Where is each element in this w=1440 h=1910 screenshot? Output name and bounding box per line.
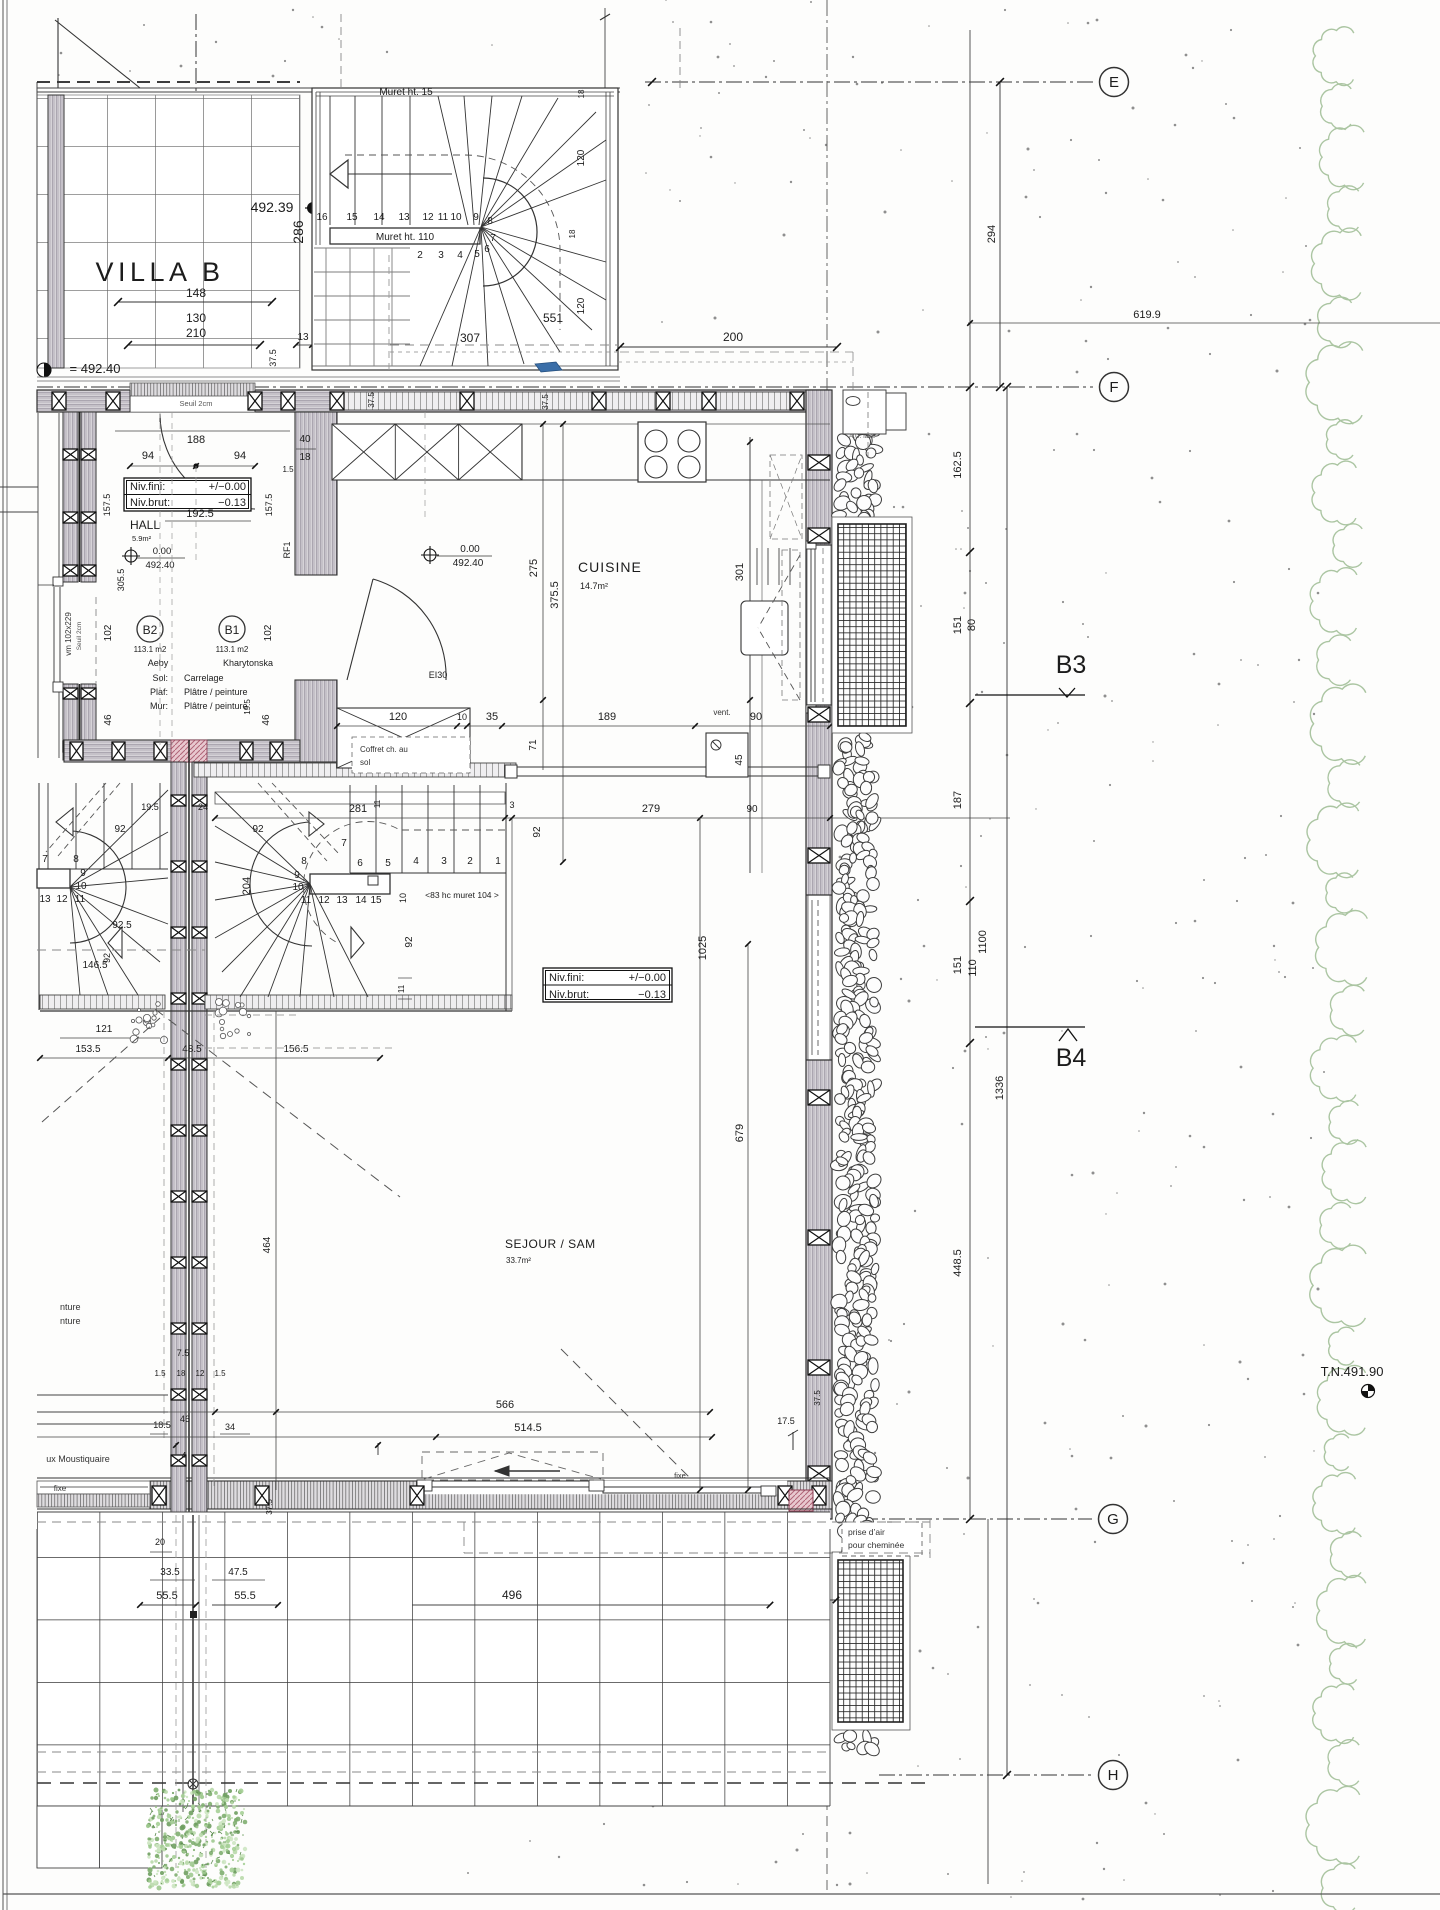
svg-text:F: F bbox=[1109, 379, 1118, 396]
svg-text:1.5: 1.5 bbox=[214, 1369, 226, 1378]
svg-text:13: 13 bbox=[297, 332, 309, 343]
svg-text:Mur:: Mur: bbox=[150, 701, 168, 711]
svg-text:551: 551 bbox=[543, 311, 563, 325]
svg-text:45: 45 bbox=[734, 754, 745, 766]
svg-text:37.5: 37.5 bbox=[813, 1390, 822, 1406]
svg-text:Plâtre / peinture: Plâtre / peinture bbox=[184, 687, 248, 697]
svg-text:+/−0.00: +/−0.00 bbox=[209, 481, 246, 493]
svg-text:46: 46 bbox=[103, 714, 114, 726]
svg-text:7: 7 bbox=[341, 838, 347, 849]
svg-text:37.5: 37.5 bbox=[541, 394, 550, 410]
svg-text:CUISINE: CUISINE bbox=[578, 559, 642, 575]
svg-text:EI30: EI30 bbox=[429, 670, 448, 680]
svg-text:113.1 m2: 113.1 m2 bbox=[216, 645, 249, 654]
svg-text:14: 14 bbox=[355, 895, 367, 906]
svg-text:= 492.40: = 492.40 bbox=[70, 361, 121, 376]
svg-text:E: E bbox=[1109, 74, 1119, 91]
svg-text:156.5: 156.5 bbox=[283, 1044, 308, 1055]
svg-text:162.5: 162.5 bbox=[952, 451, 964, 479]
svg-text:10: 10 bbox=[292, 882, 304, 893]
svg-text:55.5: 55.5 bbox=[156, 1590, 177, 1602]
svg-text:3: 3 bbox=[441, 856, 447, 867]
svg-text:94: 94 bbox=[142, 450, 154, 462]
svg-text:120: 120 bbox=[576, 297, 587, 314]
svg-text:40: 40 bbox=[299, 434, 311, 445]
svg-text:2: 2 bbox=[417, 250, 423, 261]
svg-text:12: 12 bbox=[56, 894, 68, 905]
svg-text:90: 90 bbox=[746, 804, 758, 815]
svg-text:Aeby: Aeby bbox=[148, 658, 169, 668]
svg-text:5: 5 bbox=[385, 858, 391, 869]
svg-text:92: 92 bbox=[532, 826, 543, 838]
svg-text:Niv.brut:: Niv.brut: bbox=[130, 497, 170, 509]
svg-text:11: 11 bbox=[397, 984, 406, 993]
svg-text:16: 16 bbox=[316, 212, 328, 223]
svg-text:10: 10 bbox=[75, 881, 87, 892]
svg-text:18: 18 bbox=[577, 89, 586, 98]
svg-text:187: 187 bbox=[952, 791, 964, 809]
svg-text:4: 4 bbox=[413, 856, 419, 867]
svg-text:281: 281 bbox=[349, 803, 367, 815]
svg-text:566: 566 bbox=[496, 1399, 514, 1411]
svg-text:12: 12 bbox=[318, 895, 330, 906]
svg-text:48.5: 48.5 bbox=[182, 1044, 202, 1055]
svg-text:8: 8 bbox=[73, 854, 79, 865]
svg-text:33.5: 33.5 bbox=[160, 1567, 180, 1578]
svg-text:G: G bbox=[1107, 1511, 1119, 1528]
svg-text:92: 92 bbox=[404, 936, 415, 948]
svg-text:12: 12 bbox=[196, 1369, 205, 1378]
svg-text:514.5: 514.5 bbox=[514, 1422, 542, 1434]
svg-text:33.7m²: 33.7m² bbox=[506, 1256, 531, 1265]
svg-text:294: 294 bbox=[986, 225, 998, 243]
svg-text:sol: sol bbox=[360, 758, 370, 767]
svg-text:Carrelage: Carrelage bbox=[184, 673, 224, 683]
svg-text:RF1: RF1 bbox=[282, 541, 292, 558]
svg-text:10: 10 bbox=[450, 212, 462, 223]
svg-text:B1: B1 bbox=[225, 623, 240, 637]
svg-text:A.U. lave: A.U. lave bbox=[849, 433, 876, 440]
svg-text:102: 102 bbox=[103, 624, 114, 641]
svg-text:0.00: 0.00 bbox=[153, 546, 172, 557]
svg-text:1100: 1100 bbox=[977, 930, 989, 954]
svg-text:1336: 1336 bbox=[994, 1076, 1006, 1100]
svg-text:4: 4 bbox=[457, 250, 463, 261]
svg-text:204: 204 bbox=[241, 877, 253, 895]
svg-text:4: 4 bbox=[182, 1451, 187, 1460]
svg-text:151: 151 bbox=[952, 956, 964, 974]
svg-text:12: 12 bbox=[422, 212, 434, 223]
svg-text:102: 102 bbox=[263, 624, 274, 641]
svg-text:17.5: 17.5 bbox=[777, 1416, 795, 1426]
svg-text:188: 188 bbox=[187, 434, 205, 446]
svg-text:92: 92 bbox=[114, 824, 126, 835]
svg-text:5: 5 bbox=[474, 249, 480, 260]
svg-text:5.9m²: 5.9m² bbox=[132, 534, 152, 543]
svg-text:Coffret ch. au: Coffret ch. au bbox=[360, 745, 408, 754]
svg-text:Muret ht. 110: Muret ht. 110 bbox=[376, 232, 435, 243]
svg-text:46: 46 bbox=[180, 1414, 190, 1424]
svg-text:18.5: 18.5 bbox=[153, 1420, 171, 1430]
svg-text:619.9: 619.9 bbox=[1133, 309, 1161, 321]
svg-text:13: 13 bbox=[336, 895, 348, 906]
svg-text:prise d’air: prise d’air bbox=[848, 1527, 885, 1537]
svg-text:11: 11 bbox=[75, 894, 86, 905]
svg-text:15: 15 bbox=[346, 212, 358, 223]
svg-text:B4: B4 bbox=[1056, 1044, 1087, 1072]
svg-text:B2: B2 bbox=[143, 623, 158, 637]
svg-text:55.5: 55.5 bbox=[234, 1590, 255, 1602]
svg-text:ux Moustiquaire: ux Moustiquaire bbox=[46, 1454, 110, 1464]
svg-text:120: 120 bbox=[576, 149, 587, 166]
svg-text:Plaf:: Plaf: bbox=[150, 687, 168, 697]
svg-text:34: 34 bbox=[225, 1422, 235, 1432]
svg-text:Seuil 2cm: Seuil 2cm bbox=[180, 399, 213, 408]
svg-text:9: 9 bbox=[294, 870, 300, 881]
svg-text:464: 464 bbox=[262, 1236, 273, 1253]
svg-text:94: 94 bbox=[234, 450, 246, 462]
svg-text:B3: B3 bbox=[1056, 651, 1087, 679]
svg-text:fixe: fixe bbox=[54, 1484, 67, 1493]
svg-text:Niv.brut:: Niv.brut: bbox=[549, 989, 589, 1001]
svg-text:90: 90 bbox=[750, 711, 762, 723]
svg-text:305.5: 305.5 bbox=[116, 569, 126, 592]
svg-text:SEJOUR / SAM: SEJOUR / SAM bbox=[505, 1237, 596, 1251]
svg-text:19.5: 19.5 bbox=[243, 699, 252, 715]
svg-text:35: 35 bbox=[486, 711, 498, 723]
svg-text:vm 102x229: vm 102x229 bbox=[64, 612, 73, 656]
svg-text:7: 7 bbox=[42, 854, 48, 865]
svg-text:679: 679 bbox=[734, 1124, 746, 1142]
svg-text:92: 92 bbox=[252, 824, 264, 835]
svg-text:Kharytonska: Kharytonska bbox=[223, 658, 273, 668]
svg-text:157.5: 157.5 bbox=[102, 494, 112, 517]
svg-text:nture: nture bbox=[60, 1302, 81, 1312]
svg-text:120: 120 bbox=[389, 711, 407, 723]
svg-text:8: 8 bbox=[301, 856, 307, 867]
svg-text:2: 2 bbox=[467, 856, 473, 867]
svg-text:1.5: 1.5 bbox=[154, 1369, 166, 1378]
svg-text:121: 121 bbox=[96, 1024, 113, 1035]
svg-text:8: 8 bbox=[487, 216, 493, 227]
svg-text:37.5: 37.5 bbox=[265, 1499, 274, 1515]
svg-text:Plâtre / peinture: Plâtre / peinture bbox=[184, 701, 248, 711]
svg-text:286: 286 bbox=[290, 220, 306, 244]
svg-text:275: 275 bbox=[528, 559, 540, 577]
svg-text:307: 307 bbox=[460, 331, 480, 345]
svg-text:10: 10 bbox=[398, 893, 408, 903]
svg-text:492.40: 492.40 bbox=[453, 558, 484, 569]
svg-text:80: 80 bbox=[966, 619, 978, 631]
svg-text:14: 14 bbox=[373, 212, 385, 223]
svg-text:157.5: 157.5 bbox=[264, 494, 274, 517]
svg-text:1025: 1025 bbox=[697, 936, 709, 960]
svg-text:279: 279 bbox=[642, 803, 660, 815]
svg-text:189: 189 bbox=[598, 711, 616, 723]
svg-text:20: 20 bbox=[155, 1537, 165, 1547]
svg-text:192.5: 192.5 bbox=[186, 508, 214, 520]
svg-text:210: 210 bbox=[186, 326, 206, 340]
svg-text:24: 24 bbox=[198, 802, 208, 812]
svg-text:3: 3 bbox=[438, 250, 444, 261]
svg-text:11: 11 bbox=[438, 212, 449, 223]
svg-text:H: H bbox=[1108, 1767, 1119, 1784]
svg-text:T.N.491.90: T.N.491.90 bbox=[1321, 1364, 1384, 1379]
svg-text:vent.: vent. bbox=[713, 708, 730, 717]
svg-text:13: 13 bbox=[39, 894, 51, 905]
svg-text:9: 9 bbox=[80, 868, 86, 879]
svg-text:200: 200 bbox=[723, 330, 743, 344]
svg-text:92.5: 92.5 bbox=[112, 920, 132, 931]
svg-text:0.00: 0.00 bbox=[460, 544, 480, 555]
svg-text:47.5: 47.5 bbox=[228, 1567, 248, 1578]
svg-text:1.5: 1.5 bbox=[282, 465, 294, 474]
svg-text:1: 1 bbox=[495, 856, 501, 867]
svg-text:−0.13: −0.13 bbox=[638, 989, 666, 1001]
svg-text:6: 6 bbox=[484, 244, 490, 255]
svg-text:146.5: 146.5 bbox=[82, 960, 107, 971]
svg-text:37.5: 37.5 bbox=[268, 349, 278, 367]
svg-text:19.5: 19.5 bbox=[141, 802, 159, 812]
svg-text:7: 7 bbox=[490, 233, 496, 244]
svg-text:18: 18 bbox=[177, 1369, 186, 1378]
svg-text:448.5: 448.5 bbox=[952, 1249, 964, 1277]
svg-text:pour cheminée: pour cheminée bbox=[848, 1540, 905, 1550]
svg-text:HALL: HALL bbox=[130, 518, 160, 532]
svg-text:7.5: 7.5 bbox=[177, 1348, 190, 1358]
svg-text:148: 148 bbox=[186, 286, 206, 300]
svg-text:10: 10 bbox=[457, 712, 467, 722]
svg-text:6: 6 bbox=[357, 858, 363, 869]
svg-text:492.39: 492.39 bbox=[251, 199, 294, 215]
svg-text:18: 18 bbox=[568, 229, 577, 238]
svg-text:<83 hc muret 104 >: <83 hc muret 104 > bbox=[425, 890, 499, 900]
svg-text:18: 18 bbox=[299, 452, 311, 463]
svg-text:3: 3 bbox=[509, 800, 514, 810]
svg-text:VILLA B: VILLA B bbox=[95, 257, 224, 287]
svg-text:71: 71 bbox=[528, 739, 539, 751]
svg-text:nture: nture bbox=[60, 1316, 81, 1326]
svg-text:−0.13: −0.13 bbox=[218, 497, 246, 509]
svg-text:130: 130 bbox=[186, 311, 206, 325]
svg-text:113.1 m2: 113.1 m2 bbox=[134, 645, 167, 654]
svg-text:110: 110 bbox=[967, 959, 979, 977]
svg-text:Seuil 2cm: Seuil 2cm bbox=[76, 622, 83, 651]
svg-text:14.7m²: 14.7m² bbox=[580, 581, 608, 591]
svg-text:9: 9 bbox=[473, 212, 479, 223]
svg-text:301: 301 bbox=[734, 563, 746, 581]
svg-text:496: 496 bbox=[502, 1588, 522, 1602]
svg-text:37.5: 37.5 bbox=[367, 392, 376, 408]
svg-text:153.5: 153.5 bbox=[75, 1044, 100, 1055]
svg-text:Muret ht. 15: Muret ht. 15 bbox=[379, 87, 433, 98]
svg-text:151: 151 bbox=[952, 616, 964, 634]
svg-text:11: 11 bbox=[373, 799, 382, 808]
svg-text:Niv.fini:: Niv.fini: bbox=[549, 972, 584, 984]
svg-text:375.5: 375.5 bbox=[549, 581, 561, 609]
svg-text:46: 46 bbox=[261, 714, 272, 726]
svg-text:13: 13 bbox=[398, 212, 410, 223]
svg-text:15: 15 bbox=[370, 895, 382, 906]
svg-text:+/−0.00: +/−0.00 bbox=[629, 972, 666, 984]
